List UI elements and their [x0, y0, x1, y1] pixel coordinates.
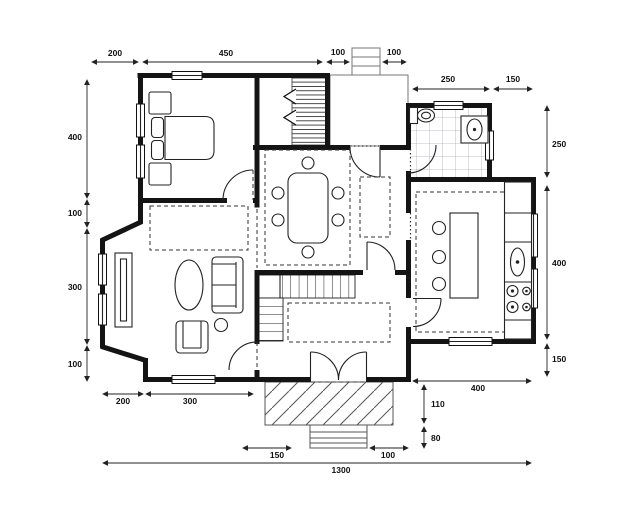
- kitchen-door: [413, 299, 441, 327]
- dining-table: [288, 173, 328, 243]
- dining-chair: [302, 246, 314, 258]
- dim-bottom-150: 150: [243, 448, 291, 460]
- dining-room: [272, 157, 344, 258]
- svg-text:400: 400: [471, 383, 485, 393]
- nightstand-top: [149, 92, 171, 114]
- svg-text:110: 110: [431, 399, 445, 409]
- bathroom-sink: [461, 116, 488, 143]
- sofa: [212, 257, 243, 313]
- floor-plan-drawing: 200 450 100 100 250 150 400 1: [0, 0, 630, 520]
- dim-top-200: 200: [92, 48, 138, 62]
- entry-mat: [288, 303, 390, 342]
- attic-stair-treads: [292, 78, 327, 145]
- svg-text:1300: 1300: [332, 465, 351, 475]
- dim-bottom-300: 300: [146, 394, 253, 406]
- svg-text:100: 100: [68, 359, 82, 369]
- svg-text:150: 150: [270, 450, 284, 460]
- svg-text:300: 300: [68, 282, 82, 292]
- bedroom-door: [223, 170, 253, 200]
- dining-chair: [272, 214, 284, 226]
- double-bed: [165, 117, 214, 160]
- dim-right-150: 150: [547, 344, 566, 376]
- dim-porch-110: 110: [424, 385, 445, 423]
- bedroom-left-window-2: [137, 145, 145, 178]
- main-staircase: [256, 275, 355, 341]
- front-porch: [265, 382, 393, 448]
- bedroom-top-window: [172, 72, 202, 80]
- dim-porch-80: 80: [424, 427, 441, 448]
- dim-bottom-right-400: 400: [413, 381, 531, 393]
- dining-chair: [272, 187, 284, 199]
- svg-text:200: 200: [116, 396, 130, 406]
- living-bottom-window: [172, 376, 215, 384]
- dim-left-100b: 100: [68, 346, 87, 381]
- bay-window-1: [99, 254, 107, 285]
- pillow-1: [152, 118, 164, 138]
- kitchen: [433, 182, 532, 339]
- radiator: [115, 253, 132, 327]
- dim-top-100b: 100: [383, 47, 406, 62]
- back-door: [350, 146, 380, 177]
- floor-plan-canvas: 200 450 100 100 250 150 400 1: [0, 0, 630, 520]
- svg-text:100: 100: [381, 450, 395, 460]
- hall-dining-door: [367, 242, 395, 270]
- bay-window-2: [99, 294, 107, 325]
- island-stool: [433, 222, 446, 235]
- kitchen-bottom-window: [449, 338, 492, 346]
- dim-overall-1300: 1300: [103, 463, 531, 475]
- svg-text:150: 150: [506, 74, 520, 84]
- toilet: [410, 108, 435, 124]
- svg-text:150: 150: [552, 354, 566, 364]
- armchair: [176, 321, 208, 353]
- svg-text:100: 100: [68, 208, 82, 218]
- svg-text:250: 250: [552, 139, 566, 149]
- back-porch-hatch: [330, 75, 408, 146]
- dim-top-450: 450: [143, 48, 322, 62]
- dim-bottom-100: 100: [370, 448, 408, 460]
- kitchen-island: [450, 213, 478, 298]
- stair-lower-treads: [256, 298, 283, 341]
- dining-sideboard: [360, 177, 390, 237]
- dim-bottom-200: 200: [103, 394, 143, 406]
- front-double-door: [311, 352, 367, 382]
- dim-left-100a: 100: [68, 200, 87, 227]
- back-steps: [352, 48, 380, 75]
- attic-staircase: [284, 78, 327, 145]
- svg-text:100: 100: [387, 47, 401, 57]
- front-porch-hatch: [265, 382, 393, 425]
- svg-text:200: 200: [108, 48, 122, 58]
- svg-text:100: 100: [331, 47, 345, 57]
- dining-chair: [302, 157, 314, 169]
- side-table: [215, 319, 228, 332]
- bathroom-top-window: [434, 102, 463, 110]
- living-room: [115, 253, 243, 353]
- svg-text:300: 300: [183, 396, 197, 406]
- bedroom: [149, 92, 214, 185]
- back-steps-treads: [352, 57, 380, 66]
- dining-chair: [332, 214, 344, 226]
- dim-left-300: 300: [68, 229, 87, 344]
- island-stool: [433, 251, 446, 264]
- hall-rug: [150, 206, 248, 250]
- dim-right-250: 250: [547, 106, 566, 177]
- svg-text:400: 400: [68, 132, 82, 142]
- dining-chair: [332, 187, 344, 199]
- front-steps: [310, 425, 367, 448]
- nightstand-bottom: [149, 163, 171, 185]
- pillow-2: [152, 141, 164, 160]
- svg-text:80: 80: [431, 433, 441, 443]
- svg-text:450: 450: [219, 48, 233, 58]
- dim-upper-right-150: 150: [494, 74, 532, 89]
- dim-top-100a: 100: [327, 47, 349, 62]
- dim-left-400: 400: [68, 80, 87, 198]
- stair-upper-treads: [280, 275, 355, 298]
- svg-text:250: 250: [441, 74, 455, 84]
- dim-right-400: 400: [547, 186, 566, 339]
- dim-upper-right-250: 250: [413, 74, 489, 89]
- island-stool: [433, 278, 446, 291]
- svg-text:400: 400: [552, 258, 566, 268]
- bedroom-left-window-1: [137, 104, 145, 137]
- coffee-table: [175, 260, 203, 310]
- back-porch: [330, 48, 408, 146]
- living-room-door: [229, 342, 257, 370]
